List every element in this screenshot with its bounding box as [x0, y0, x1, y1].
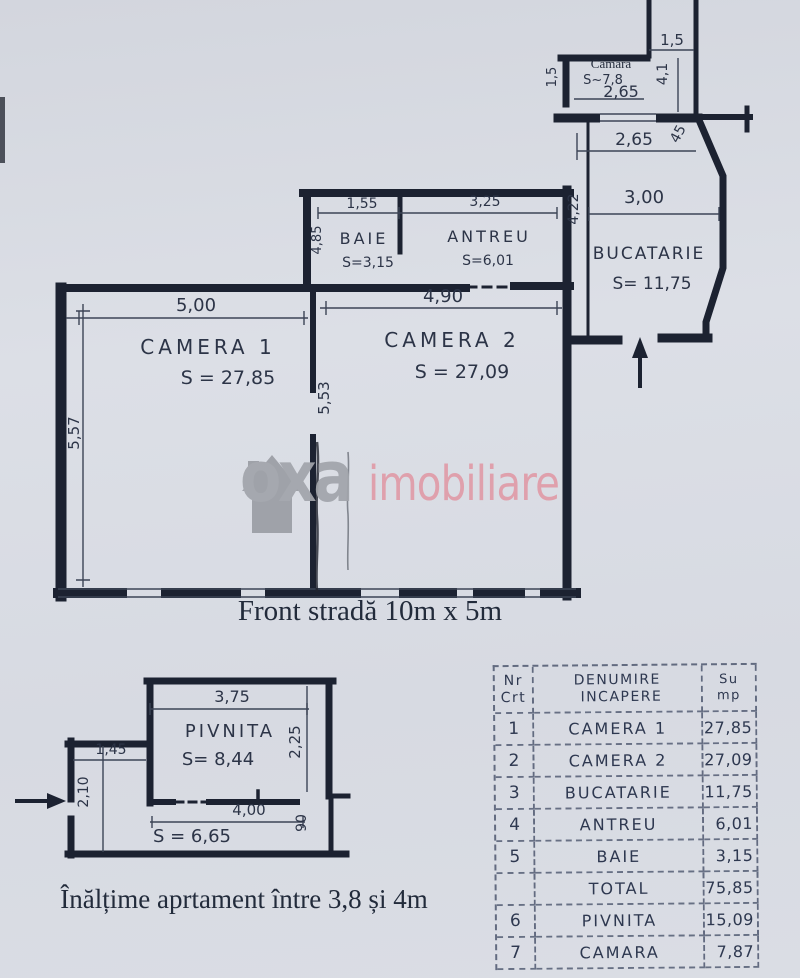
header-nr-line2: Crt — [501, 689, 527, 706]
camara-width: 2,65 — [603, 82, 639, 101]
wall-kitchen-right-chamfer — [699, 120, 723, 334]
piv-opening-dim: 90 — [294, 814, 310, 832]
camera2-width: 4,90 — [423, 286, 463, 307]
scanned-floor-plan-page: { "plan": { "shaft": { "dim": "1,5" }, "… — [0, 0, 800, 978]
piv-right-height: 2,25 — [286, 725, 304, 758]
piv-left-height: 2,10 — [76, 776, 92, 807]
antreu-area: S=6,01 — [462, 253, 514, 269]
plan-labels: 1,5 Cămara S~7,8 2,65 1,5 4,1 2,65 45 3,… — [65, 31, 705, 450]
camera2-area: S = 27,09 — [415, 361, 509, 383]
kitchen-name: BUCATARIE — [593, 244, 706, 264]
row8-value: 7,87 — [705, 936, 759, 968]
table-header-nr: Nr Crt — [495, 667, 534, 714]
camera1-name: CAMERA 1 — [140, 335, 275, 359]
row3-value: 11,75 — [704, 776, 758, 808]
baie-area: S=3,15 — [342, 255, 394, 271]
scan-edge-mark — [0, 97, 5, 163]
kitchen-notch-dim: 45 — [667, 122, 689, 145]
kitchen-entrance-arrow — [632, 337, 648, 388]
cellar-labels: 3,75 2,25 PIVNITA S= 8,44 1,45 2,10 4,00… — [76, 687, 310, 847]
row1-value: 27,85 — [703, 712, 757, 744]
kitchen-width: 3,00 — [624, 187, 664, 208]
row4-name: ANTREU — [535, 808, 704, 841]
kitchen-area: S= 11,75 — [612, 274, 691, 294]
camera1-width: 5,00 — [176, 295, 216, 316]
watermark-brand-pink: imobiliare — [368, 465, 559, 504]
arrow-head — [632, 337, 648, 358]
watermark-logo: oxa imobiliare — [240, 451, 596, 504]
arrow-head — [47, 793, 66, 809]
camera2-name: CAMERA 2 — [384, 328, 519, 352]
header-su-line2: mp — [717, 687, 741, 703]
row5-value: 3,15 — [704, 840, 758, 872]
baie-height: 4,85 — [310, 226, 325, 255]
header-su-line1: Su — [719, 672, 739, 688]
row5-name: BAIE — [535, 840, 704, 873]
piv-corridor-width: 1,45 — [95, 742, 126, 758]
row6-value: 75,85 — [704, 872, 758, 904]
row2-name: CAMERA 2 — [534, 744, 703, 777]
kitchen-height: 4,22 — [566, 193, 582, 224]
piv-name: PIVNITA — [185, 721, 275, 742]
camara-left-dim: 1,5 — [545, 67, 560, 88]
row8-name: CAMARA — [536, 936, 705, 969]
row1-name: CAMERA 1 — [534, 712, 703, 745]
camara-title: Cămara — [591, 56, 632, 71]
row7-nr: 6 — [497, 906, 536, 938]
dim-shaft: 1,5 — [660, 31, 684, 49]
height-note-caption: Înălțime aprtament între 3,8 și 4m — [28, 884, 460, 915]
dim-line-kitchen-width — [589, 207, 719, 221]
camera1-height: 5,57 — [65, 416, 83, 449]
row7-value: 15,09 — [705, 904, 759, 936]
row4-value: 6,01 — [704, 808, 758, 840]
header-nr-line1: Nr — [504, 673, 523, 690]
row5-nr: 5 — [496, 842, 535, 874]
kitchen-top-width: 2,65 — [615, 130, 653, 150]
piv-top-width: 3,75 — [214, 687, 250, 706]
row3-name: BUCATARIE — [535, 776, 704, 809]
row6-name: TOTAL — [535, 872, 704, 905]
camara-right-dim: 4,1 — [655, 63, 671, 85]
table-header-su: Su mp — [703, 665, 757, 712]
piv-lower-area: S = 6,65 — [153, 826, 231, 847]
piv-area: S= 8,44 — [182, 749, 254, 770]
header-denumire-line1: DENUMIRE — [574, 671, 661, 689]
antreu-width: 3,25 — [469, 194, 500, 210]
room-areas-table: Nr Crt DENUMIRE INCAPERE Su mp 1 CAMERA … — [493, 663, 760, 970]
camera1-area: S = 27,85 — [181, 367, 275, 389]
baie-width: 1,55 — [346, 196, 377, 212]
row2-value: 27,09 — [703, 744, 757, 776]
row2-nr: 2 — [495, 746, 534, 778]
header-denumire-line2: INCAPERE — [572, 688, 662, 706]
watermark-brand-gray: oxa — [240, 451, 350, 504]
piv-bottom-width: 4,00 — [232, 801, 265, 819]
row4-nr: 4 — [496, 810, 535, 842]
camera2-height: 5,53 — [315, 381, 333, 414]
row7-name: PIVNITA — [536, 904, 705, 937]
table-header-denumire: DENUMIRE INCAPERE — [534, 665, 703, 713]
row8-nr: 7 — [497, 938, 536, 970]
row1-nr: 1 — [495, 714, 534, 746]
antreu-name: ANTREU — [447, 227, 531, 246]
row3-nr: 3 — [496, 778, 535, 810]
cellar-entrance-arrow — [15, 793, 66, 809]
front-street-caption: Front stradă 10m x 5m — [150, 595, 590, 628]
baie-name: BAIE — [340, 229, 389, 248]
row6-nr — [496, 874, 535, 906]
